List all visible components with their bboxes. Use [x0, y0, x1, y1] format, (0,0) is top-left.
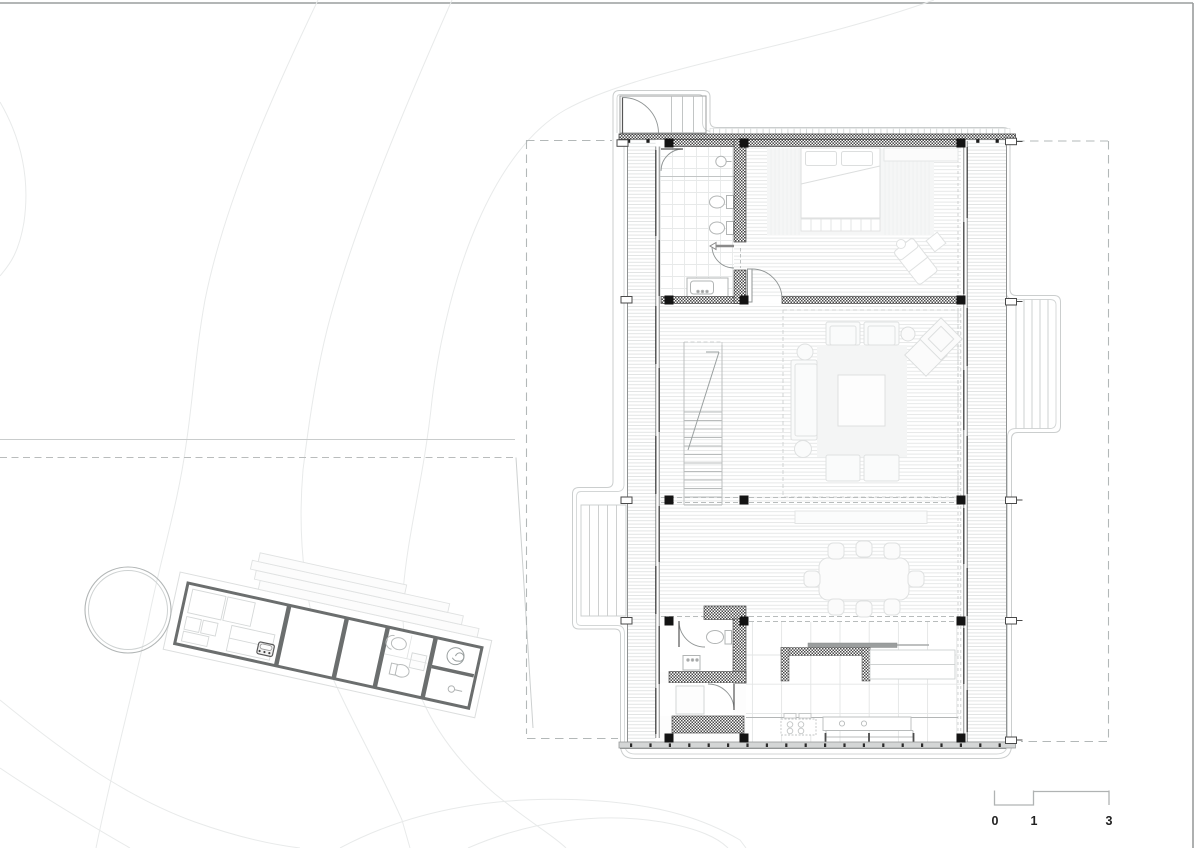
svg-text:1: 1 — [1031, 814, 1038, 828]
svg-text:0: 0 — [992, 814, 999, 828]
svg-text:3: 3 — [1106, 814, 1113, 828]
